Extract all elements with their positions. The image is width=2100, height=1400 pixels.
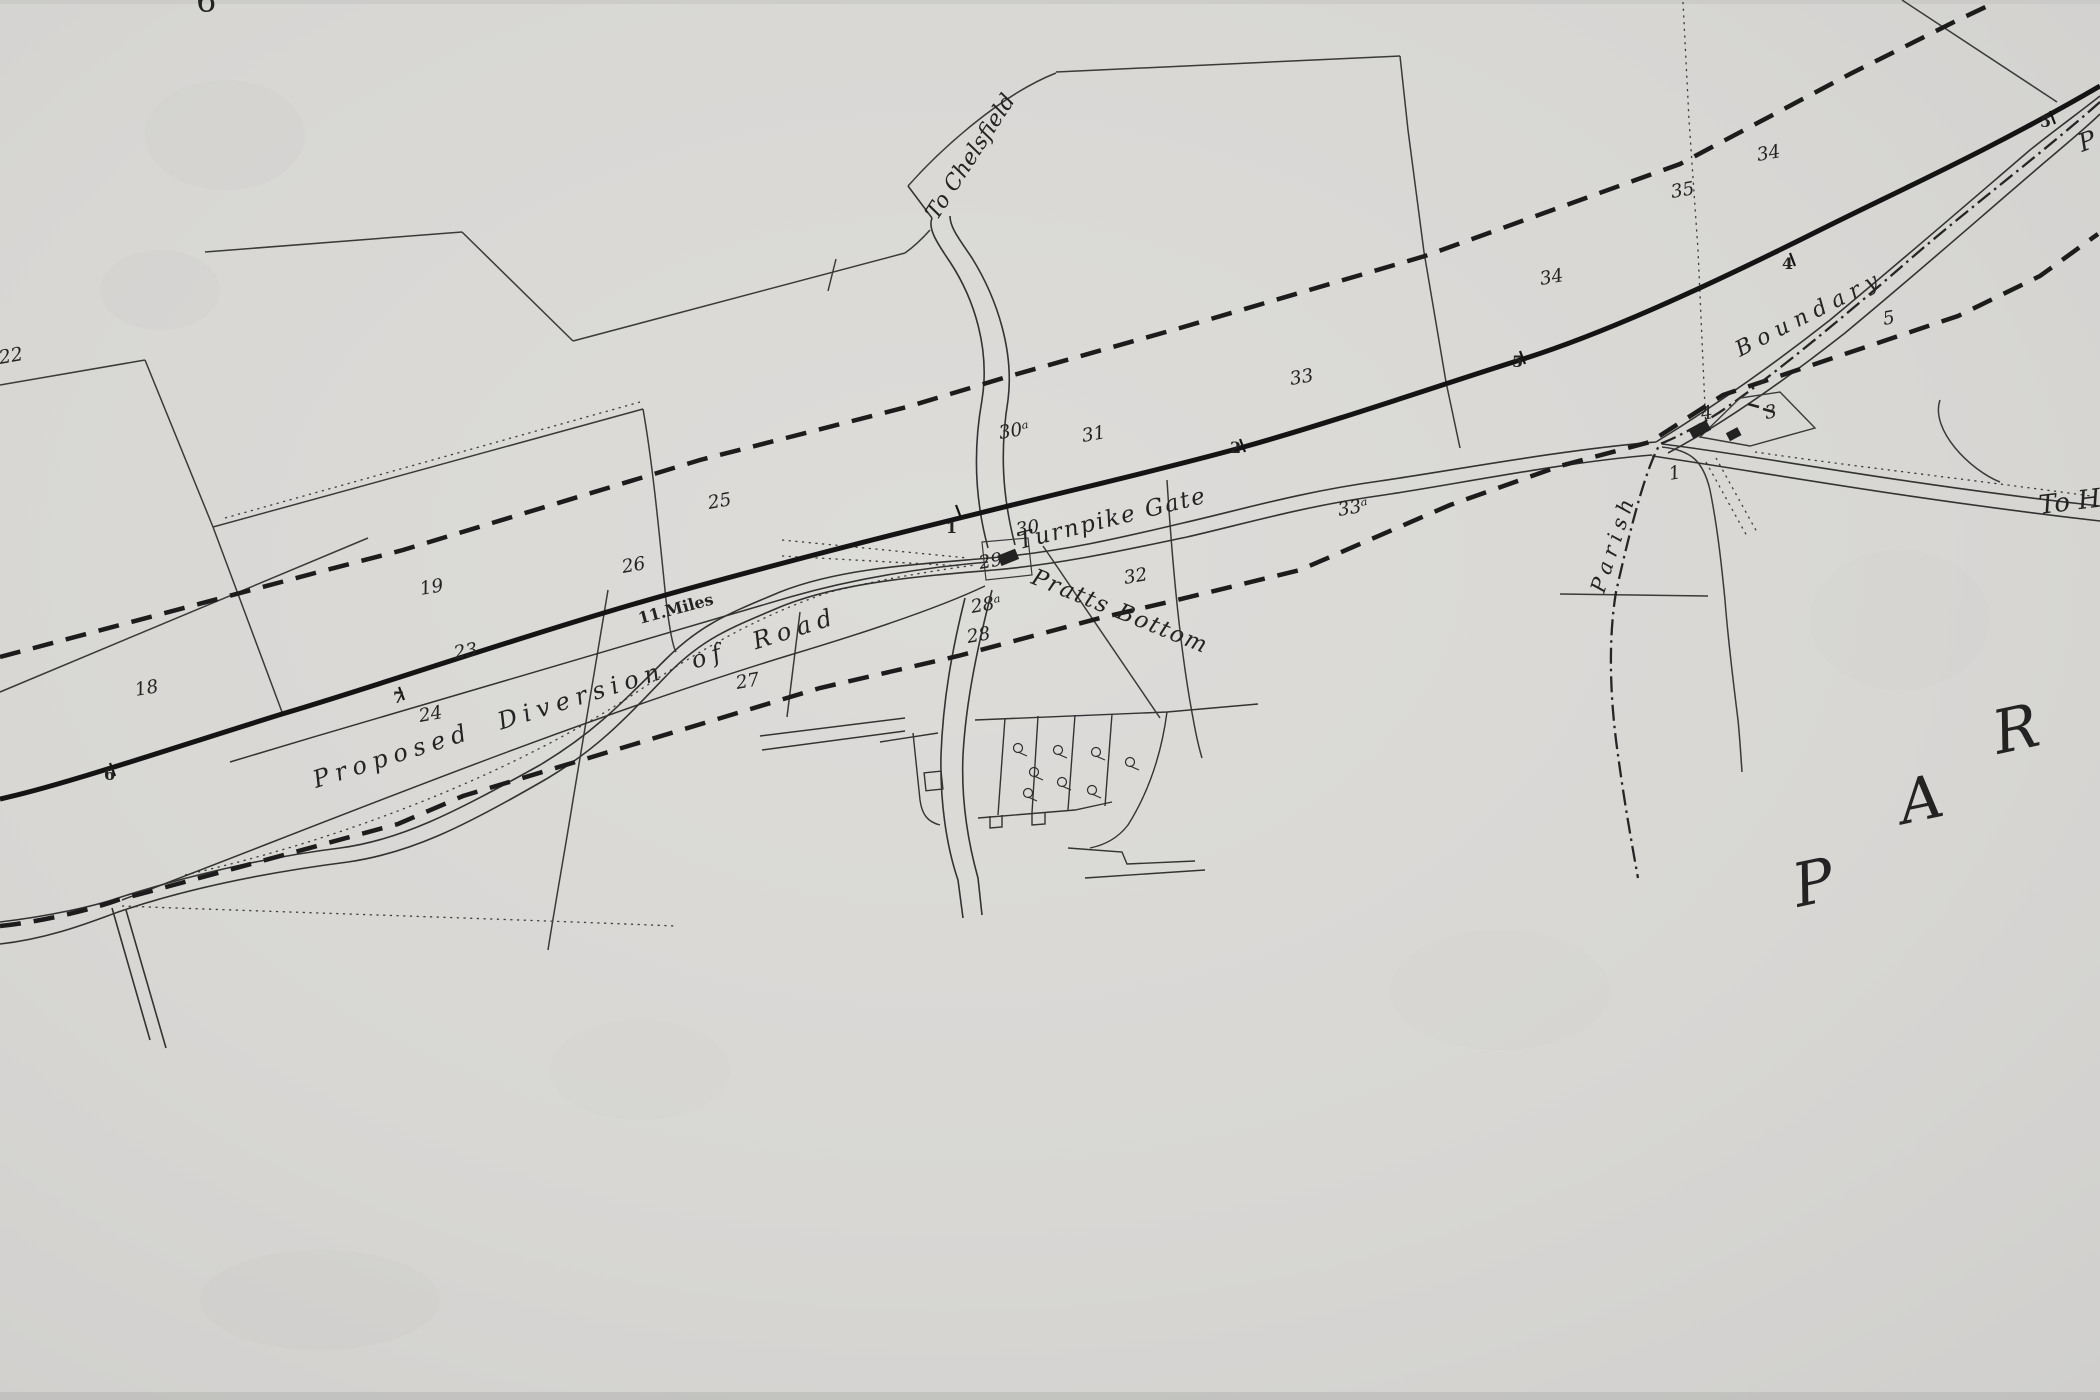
parcel-19: 19 [418, 575, 445, 600]
milestone-1: 1 [946, 518, 957, 537]
parcel-27: 27 [733, 669, 761, 694]
map-stage: To Chelsfield Turnpike Gate Pratts Botto… [0, 0, 2100, 1400]
parcel-26: 26 [619, 553, 647, 578]
parcel-32: 32 [1122, 564, 1149, 589]
parcel-33: 33 [1288, 365, 1315, 390]
milestone-4: 4 [1782, 254, 1793, 273]
paper-background [0, 0, 2100, 1400]
photo-edge-shadow-top [0, 0, 2100, 4]
parcel-29: 29 [976, 549, 1004, 574]
milestone-7: 7 [393, 688, 404, 707]
milestone-5a: 5 [1512, 352, 1523, 371]
parcel-23: 23 [451, 639, 479, 664]
parcel-35: 35 [1669, 178, 1696, 203]
parcel-24: 24 [416, 702, 444, 727]
milestone-2: 2 [1230, 438, 1241, 457]
parcel-34: 34 [1538, 265, 1565, 290]
milestone-6: 6 [104, 765, 115, 784]
parcel-34-upper: 34 [1755, 141, 1782, 166]
milestone-5b: 5 [2040, 112, 2051, 131]
parcel-30: 30 [1014, 516, 1041, 541]
label-edge-22-fragment: 22 [0, 343, 25, 369]
parcel-25: 25 [705, 489, 733, 514]
label-edge-6-fragment: 6 [196, 0, 216, 20]
parcel-31: 31 [1080, 422, 1107, 447]
historic-map-canvas: To Chelsfield Turnpike Gate Pratts Botto… [0, 0, 2100, 1400]
parcel-18: 18 [133, 676, 160, 701]
photo-edge-shadow-bottom [0, 1392, 2100, 1400]
parcel-28: 28 [964, 623, 992, 648]
